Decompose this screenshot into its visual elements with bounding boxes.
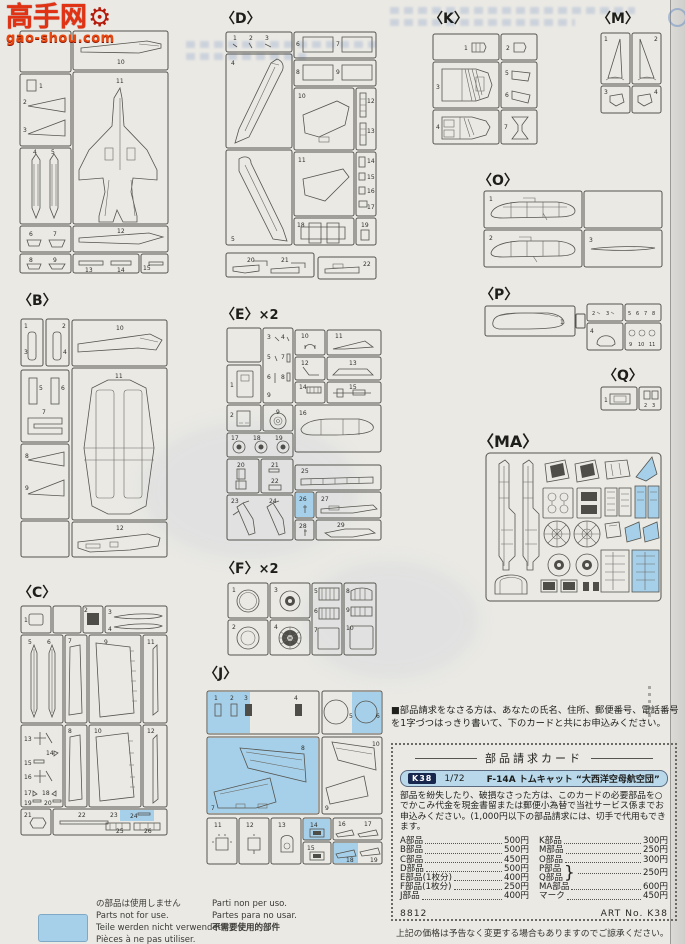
svg-text:4: 4 — [654, 89, 658, 96]
kit-badge: K38 1/72 F-14A トムキャット “大西洋空母航空団” — [400, 770, 668, 787]
price-column-left: A部品500円 B部品500円 C部品450円 D部品500円 E部品(1枚分)… — [400, 837, 529, 901]
svg-text:18: 18 — [346, 857, 354, 864]
legend-line-jp: の部品は使用しません — [96, 898, 224, 910]
svg-text:16: 16 — [338, 821, 346, 828]
svg-text:4: 4 — [436, 124, 440, 131]
legend-column-2: Parti non per uso. Partes para no usar. … — [212, 898, 297, 934]
svg-text:1: 1 — [214, 695, 218, 702]
svg-text:28: 28 — [299, 523, 307, 530]
svg-text:6: 6 — [505, 92, 509, 99]
svg-text:14: 14 — [310, 822, 318, 829]
dot-leader — [425, 853, 502, 854]
sprue-B-diagram: 1 2 3 4 10 5 6 7 8 9 11 12 — [20, 318, 168, 558]
sprue-Q-label: 〈Q〉 — [603, 365, 643, 385]
dot-leader — [426, 871, 502, 872]
svg-text:10: 10 — [638, 342, 644, 348]
svg-text:20: 20 — [237, 462, 245, 469]
svg-text:7: 7 — [314, 627, 318, 634]
gear-icon: ⚙ — [88, 5, 111, 31]
svg-text:15: 15 — [307, 845, 315, 852]
svg-text:3: 3 — [244, 695, 248, 702]
sprue-C-label: 〈C〉 — [18, 582, 56, 602]
dot-leader — [454, 880, 502, 881]
dot-leader — [454, 889, 503, 890]
svg-text:14: 14 — [117, 267, 125, 274]
svg-text:3: 3 — [604, 89, 608, 96]
svg-text:27: 27 — [321, 496, 329, 503]
svg-text:3: 3 — [108, 609, 112, 616]
svg-text:15: 15 — [143, 265, 151, 272]
card-body-text: 部品を紛失したり、破損なさった方は、このカードの必要部品を○でかこみ代金を現金書… — [400, 791, 668, 832]
svg-text:16: 16 — [367, 188, 375, 195]
svg-text:16: 16 — [24, 774, 32, 781]
svg-text:17: 17 — [367, 204, 375, 211]
svg-text:3: 3 — [267, 334, 271, 341]
svg-text:2: 2 — [230, 412, 234, 419]
svg-text:1: 1 — [233, 35, 237, 42]
sprue-MA-label: 〈MA〉 — [478, 428, 538, 452]
svg-text:5: 5 — [267, 354, 271, 361]
sprue-A: 10 1 2 3 4 5 6 7 8 9 11 12 13 14 15 — [19, 30, 169, 274]
svg-text:21: 21 — [281, 257, 289, 264]
svg-text:19: 19 — [24, 800, 32, 807]
watermark-site-text: gao-shou.com — [6, 32, 115, 45]
svg-text:5: 5 — [505, 70, 509, 77]
sprue-E-diagram: 1 2 3 4 5 7 6 8 9 9 10 11 12 13 14 15 16… — [225, 325, 383, 543]
svg-text:6: 6 — [314, 608, 318, 615]
svg-text:9: 9 — [276, 409, 280, 416]
svg-text:15: 15 — [24, 760, 32, 767]
sprue-P-label: 〈P〉 — [480, 284, 518, 304]
svg-text:1: 1 — [604, 36, 608, 43]
card-footer-code: 8812 — [400, 908, 427, 919]
legend-line-en: Parts not for use. — [96, 910, 224, 922]
sprue-P: 1 2 3 5 6 7 8 4 9 10 11 — [484, 302, 662, 352]
price-row-pq-brace: P部品 Q部品 } 250円 — [539, 865, 668, 883]
svg-text:13: 13 — [367, 128, 375, 135]
svg-text:13: 13 — [85, 267, 93, 274]
svg-text:7: 7 — [281, 354, 285, 361]
parts-request-card: 部品請求カード K38 1/72 F-14A トムキャット “大西洋空母航空団”… — [391, 743, 677, 921]
sprue-M-label: 〈M〉 — [597, 8, 639, 28]
print-through-stamp — [668, 8, 685, 27]
sprue-O-label: 〈O〉 — [478, 170, 518, 190]
svg-text:1: 1 — [24, 323, 28, 330]
sprue-MA-diagram — [485, 452, 662, 602]
svg-text:5: 5 — [28, 639, 32, 646]
svg-text:22: 22 — [78, 812, 86, 819]
svg-text:20: 20 — [44, 800, 52, 807]
svg-text:10: 10 — [372, 741, 380, 748]
sprue-B-label: 〈B〉 — [18, 290, 57, 310]
sprue-O-diagram: 1 2 3 — [483, 190, 663, 268]
sprue-C-diagram: 1 2 3 4 5 6 7 9 11 13 14 15 16 17 18 19 … — [20, 605, 168, 873]
svg-text:9: 9 — [325, 805, 329, 812]
svg-text:3: 3 — [606, 311, 609, 317]
svg-text:3: 3 — [24, 349, 28, 356]
svg-text:7: 7 — [68, 638, 72, 645]
svg-text:1: 1 — [604, 397, 608, 404]
sprue-J-label: 〈J〉 — [204, 663, 237, 683]
dot-leader — [567, 899, 641, 900]
svg-text:24: 24 — [130, 813, 138, 820]
svg-text:3: 3 — [652, 403, 655, 409]
svg-text:5: 5 — [349, 713, 353, 720]
brace-glyph: } — [564, 869, 575, 878]
svg-text:20: 20 — [247, 257, 255, 264]
sprue-F-diagram: 1 2 3 4 5 6 7 8 9 10 — [227, 582, 377, 658]
svg-text:6: 6 — [29, 231, 33, 238]
svg-text:5: 5 — [628, 311, 631, 317]
watermark-logo: 高手网 ⚙ gao-shou.com — [6, 4, 115, 45]
svg-text:12: 12 — [116, 525, 124, 532]
svg-text:7: 7 — [504, 124, 508, 131]
svg-text:11: 11 — [649, 342, 655, 348]
price-value: 250円 — [643, 869, 668, 878]
svg-text:1: 1 — [232, 587, 236, 594]
legend-line-fr: Pièces à ne pas utiliser. — [96, 934, 224, 944]
sprue-F: 1 2 3 4 5 6 7 8 9 10 — [227, 582, 377, 658]
sprue-C: 1 2 3 4 5 6 7 9 11 13 14 15 16 17 18 19 … — [20, 605, 168, 873]
svg-text:12: 12 — [147, 728, 155, 735]
svg-text:2: 2 — [23, 99, 27, 106]
parts-order-intro: ■部品請求をなさる方は、あなたの氏名、住所、郵便番号、電話番号を1字づつはっきり… — [391, 705, 680, 730]
svg-text:22: 22 — [271, 478, 279, 485]
svg-text:4: 4 — [294, 695, 298, 702]
card-title-row: 部品請求カード — [400, 750, 668, 766]
sprue-J: 1 2 3 4 5 6 8 7 10 9 11 12 13 14 15 16 1… — [206, 690, 384, 866]
sprue-M: 1 2 3 4 — [600, 32, 662, 114]
svg-text:2: 2 — [654, 36, 658, 43]
svg-text:26: 26 — [144, 828, 152, 835]
svg-text:11: 11 — [214, 822, 222, 829]
svg-text:4: 4 — [274, 624, 278, 631]
svg-text:10: 10 — [94, 728, 102, 735]
dot-leader — [422, 899, 502, 900]
sprue-K: 1 2 3 5 6 4 7 — [432, 33, 538, 145]
svg-text:13: 13 — [349, 360, 357, 367]
svg-text:7: 7 — [53, 231, 57, 238]
sprue-P-diagram: 1 2 3 5 6 7 8 4 9 10 11 — [484, 302, 662, 352]
svg-text:15: 15 — [367, 174, 375, 181]
svg-text:8: 8 — [301, 745, 305, 752]
dot-leader — [566, 853, 641, 854]
svg-text:2: 2 — [62, 323, 66, 330]
card-title: 部品請求カード — [485, 750, 583, 766]
svg-text:14: 14 — [299, 384, 307, 391]
svg-text:10: 10 — [116, 325, 124, 332]
kit-code-badge: K38 — [408, 773, 436, 784]
svg-text:11: 11 — [116, 78, 124, 85]
svg-text:3: 3 — [589, 237, 593, 244]
dot-leader — [425, 843, 502, 844]
svg-text:4: 4 — [33, 149, 37, 156]
svg-text:9: 9 — [346, 607, 350, 614]
svg-text:4: 4 — [281, 334, 285, 341]
svg-text:19: 19 — [370, 857, 378, 864]
price-value: 400円 — [504, 892, 529, 901]
svg-text:7: 7 — [211, 805, 215, 812]
kit-name: F-14A トムキャット “大西洋空母航空団” — [487, 772, 660, 785]
svg-text:22: 22 — [363, 261, 371, 268]
svg-text:13: 13 — [278, 822, 286, 829]
svg-text:26: 26 — [299, 496, 307, 503]
svg-text:14: 14 — [46, 750, 54, 757]
svg-text:9: 9 — [25, 485, 29, 492]
legend-line-zh: 不需要使用的部件 — [212, 922, 297, 934]
price-row: マーク450円 — [539, 892, 668, 901]
price-value: 300円 — [643, 856, 668, 865]
svg-text:29: 29 — [337, 522, 345, 529]
legend-line-es: Partes para no usar. — [212, 910, 297, 922]
svg-text:6: 6 — [61, 385, 65, 392]
svg-text:2: 2 — [249, 35, 253, 42]
svg-text:11: 11 — [335, 333, 343, 340]
sprue-Q: 1 2 3 — [600, 386, 662, 412]
svg-text:5: 5 — [231, 236, 235, 243]
svg-text:4: 4 — [108, 626, 112, 633]
svg-text:1: 1 — [39, 83, 43, 90]
svg-text:3: 3 — [23, 127, 27, 134]
svg-text:12: 12 — [301, 360, 309, 367]
svg-text:21: 21 — [271, 462, 279, 469]
svg-text:6: 6 — [376, 713, 380, 720]
svg-text:10: 10 — [117, 59, 125, 66]
svg-text:14: 14 — [367, 158, 375, 165]
svg-text:9: 9 — [336, 69, 340, 76]
price-name: J部品 — [400, 892, 420, 901]
price-column-right: K部品300円 M部品250円 O部品300円 P部品 Q部品 } 250円 M… — [539, 837, 668, 901]
svg-text:5: 5 — [39, 385, 43, 392]
svg-text:12: 12 — [117, 228, 125, 235]
price-row: J部品400円 — [400, 892, 529, 901]
svg-text:6: 6 — [296, 41, 300, 48]
sprue-F-label: 〈F〉×2 — [221, 558, 279, 578]
sprue-E-label: 〈E〉×2 — [221, 304, 279, 324]
price-name: マーク — [539, 892, 565, 901]
svg-text:2: 2 — [506, 45, 510, 52]
svg-text:2: 2 — [644, 403, 647, 409]
sprue-D: 1 2 3 4 5 6 7 8 9 10 12 13 11 14 15 16 1… — [225, 31, 377, 281]
svg-text:8: 8 — [346, 588, 350, 595]
svg-text:1: 1 — [230, 382, 234, 389]
svg-text:2: 2 — [592, 311, 595, 317]
watermark-cn-text: 高手网 — [6, 4, 87, 31]
card-footer: 8812 ART No. K38 — [400, 908, 668, 919]
svg-text:8: 8 — [25, 453, 29, 460]
legend-column-1: の部品は使用しません Parts not for use. Teile werd… — [96, 898, 224, 944]
legend-line-de: Teile werden nicht verwendet. — [96, 922, 224, 934]
svg-text:8: 8 — [68, 728, 72, 735]
svg-text:7: 7 — [644, 311, 647, 317]
svg-text:4: 4 — [231, 60, 235, 67]
svg-text:9: 9 — [104, 639, 108, 646]
sprue-O: 1 2 3 — [483, 190, 663, 268]
svg-text:21: 21 — [24, 812, 32, 819]
svg-text:1: 1 — [489, 196, 493, 203]
svg-text:25: 25 — [116, 828, 124, 835]
sprue-K-label: 〈K〉 — [429, 8, 468, 28]
svg-text:2: 2 — [232, 624, 236, 631]
svg-text:4: 4 — [590, 328, 594, 335]
svg-text:2: 2 — [84, 607, 88, 614]
svg-text:7: 7 — [42, 409, 46, 416]
svg-text:6: 6 — [636, 311, 639, 317]
instruction-sheet-page: { "watermark": { "cn": "高手网", "site": "g… — [0, 0, 685, 944]
sprue-K-diagram: 1 2 3 5 6 4 7 — [432, 33, 538, 145]
brace-names: P部品 Q部品 — [539, 865, 563, 883]
svg-text:23: 23 — [110, 812, 118, 819]
svg-text:8: 8 — [281, 374, 285, 381]
svg-text:24: 24 — [269, 498, 277, 505]
title-rule-right — [591, 758, 653, 759]
sprue-J-diagram: 1 2 3 4 5 6 8 7 10 9 11 12 13 14 15 16 1… — [206, 690, 384, 866]
svg-text:6: 6 — [267, 374, 271, 381]
price-change-note: 上記の価格は予告なく変更する場合もありますのでご諒承ください。 — [396, 926, 680, 939]
kit-scale: 1/72 — [444, 774, 464, 784]
dot-leader — [565, 862, 641, 863]
svg-text:9: 9 — [267, 392, 271, 399]
sprue-A-diagram: 10 1 2 3 4 5 6 7 8 9 11 12 13 14 15 — [19, 30, 169, 274]
svg-text:4: 4 — [63, 349, 67, 356]
svg-text:8: 8 — [652, 311, 655, 317]
svg-text:8: 8 — [29, 257, 33, 264]
card-footer-art-no: ART No. K38 — [601, 908, 668, 919]
svg-text:19: 19 — [361, 222, 369, 229]
svg-text:10: 10 — [298, 93, 306, 100]
svg-text:23: 23 — [231, 498, 239, 505]
svg-text:11: 11 — [147, 639, 155, 646]
price-list: A部品500円 B部品500円 C部品450円 D部品500円 E部品(1枚分)… — [400, 837, 668, 901]
sprue-D-label: 〈D〉 — [221, 8, 261, 28]
sprue-D-diagram: 1 2 3 4 5 6 7 8 9 10 12 13 11 14 15 16 1… — [225, 31, 377, 281]
svg-text:17: 17 — [24, 790, 32, 797]
dot-leader — [571, 889, 641, 890]
svg-text:7: 7 — [336, 41, 340, 48]
svg-text:3: 3 — [265, 35, 269, 42]
svg-text:2: 2 — [489, 235, 493, 242]
dot-leader — [578, 873, 641, 874]
svg-text:8: 8 — [296, 69, 300, 76]
svg-text:17: 17 — [364, 821, 372, 828]
svg-text:6: 6 — [47, 639, 51, 646]
svg-text:5: 5 — [314, 588, 318, 595]
svg-text:3: 3 — [274, 587, 278, 594]
svg-text:13: 13 — [24, 736, 32, 743]
title-rule-left — [415, 758, 477, 759]
svg-text:1: 1 — [464, 45, 468, 52]
svg-text:18: 18 — [42, 790, 50, 797]
svg-text:2: 2 — [230, 695, 234, 702]
svg-text:1: 1 — [24, 617, 28, 624]
svg-text:9: 9 — [53, 257, 57, 264]
svg-text:25: 25 — [301, 468, 309, 475]
svg-text:12: 12 — [367, 98, 375, 105]
svg-text:11: 11 — [115, 373, 123, 380]
sprue-E: 1 2 3 4 5 7 6 8 9 9 10 11 12 13 14 15 16… — [225, 325, 383, 543]
svg-text:11: 11 — [298, 157, 306, 164]
blue-highlight-swatch — [38, 914, 88, 942]
sprue-MA — [485, 452, 662, 602]
dot-leader — [425, 862, 502, 863]
sprue-M-diagram: 1 2 3 4 — [600, 32, 662, 114]
svg-text:9: 9 — [629, 342, 632, 348]
sprue-B: 1 2 3 4 10 5 6 7 8 9 11 12 — [20, 318, 168, 558]
price-value: 450円 — [643, 892, 668, 901]
svg-text:12: 12 — [246, 822, 254, 829]
dot-leader — [564, 843, 641, 844]
sprue-Q-diagram: 1 2 3 — [600, 386, 662, 412]
legend-line-it: Parti non per uso. — [212, 898, 297, 910]
svg-text:3: 3 — [436, 84, 440, 91]
svg-text:10: 10 — [301, 333, 309, 340]
svg-text:16: 16 — [299, 410, 307, 417]
svg-text:5: 5 — [51, 149, 55, 156]
